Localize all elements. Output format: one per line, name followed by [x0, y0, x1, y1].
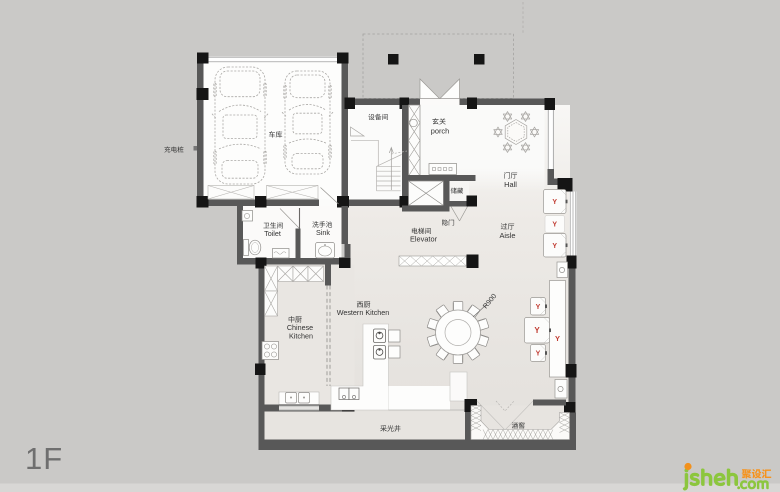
- svg-text:Y: Y: [536, 304, 541, 311]
- svg-text:Hall: Hall: [504, 180, 517, 189]
- svg-text:Y: Y: [552, 222, 557, 229]
- svg-text:porch: porch: [431, 127, 450, 136]
- svg-text:Y: Y: [552, 243, 557, 250]
- svg-text:Y: Y: [536, 351, 541, 358]
- svg-text:Kitchen: Kitchen: [289, 332, 313, 341]
- svg-text:Western Kitchen: Western Kitchen: [337, 308, 390, 317]
- svg-text:Y: Y: [552, 199, 557, 206]
- svg-text:Elevator: Elevator: [410, 235, 438, 244]
- svg-text:Toilet: Toilet: [264, 229, 281, 238]
- svg-text:Y: Y: [534, 326, 540, 335]
- svg-text:Y: Y: [555, 334, 560, 343]
- svg-text:Sink: Sink: [316, 228, 330, 237]
- svg-text:1F: 1F: [25, 441, 63, 476]
- svg-text:Aisle: Aisle: [499, 231, 515, 240]
